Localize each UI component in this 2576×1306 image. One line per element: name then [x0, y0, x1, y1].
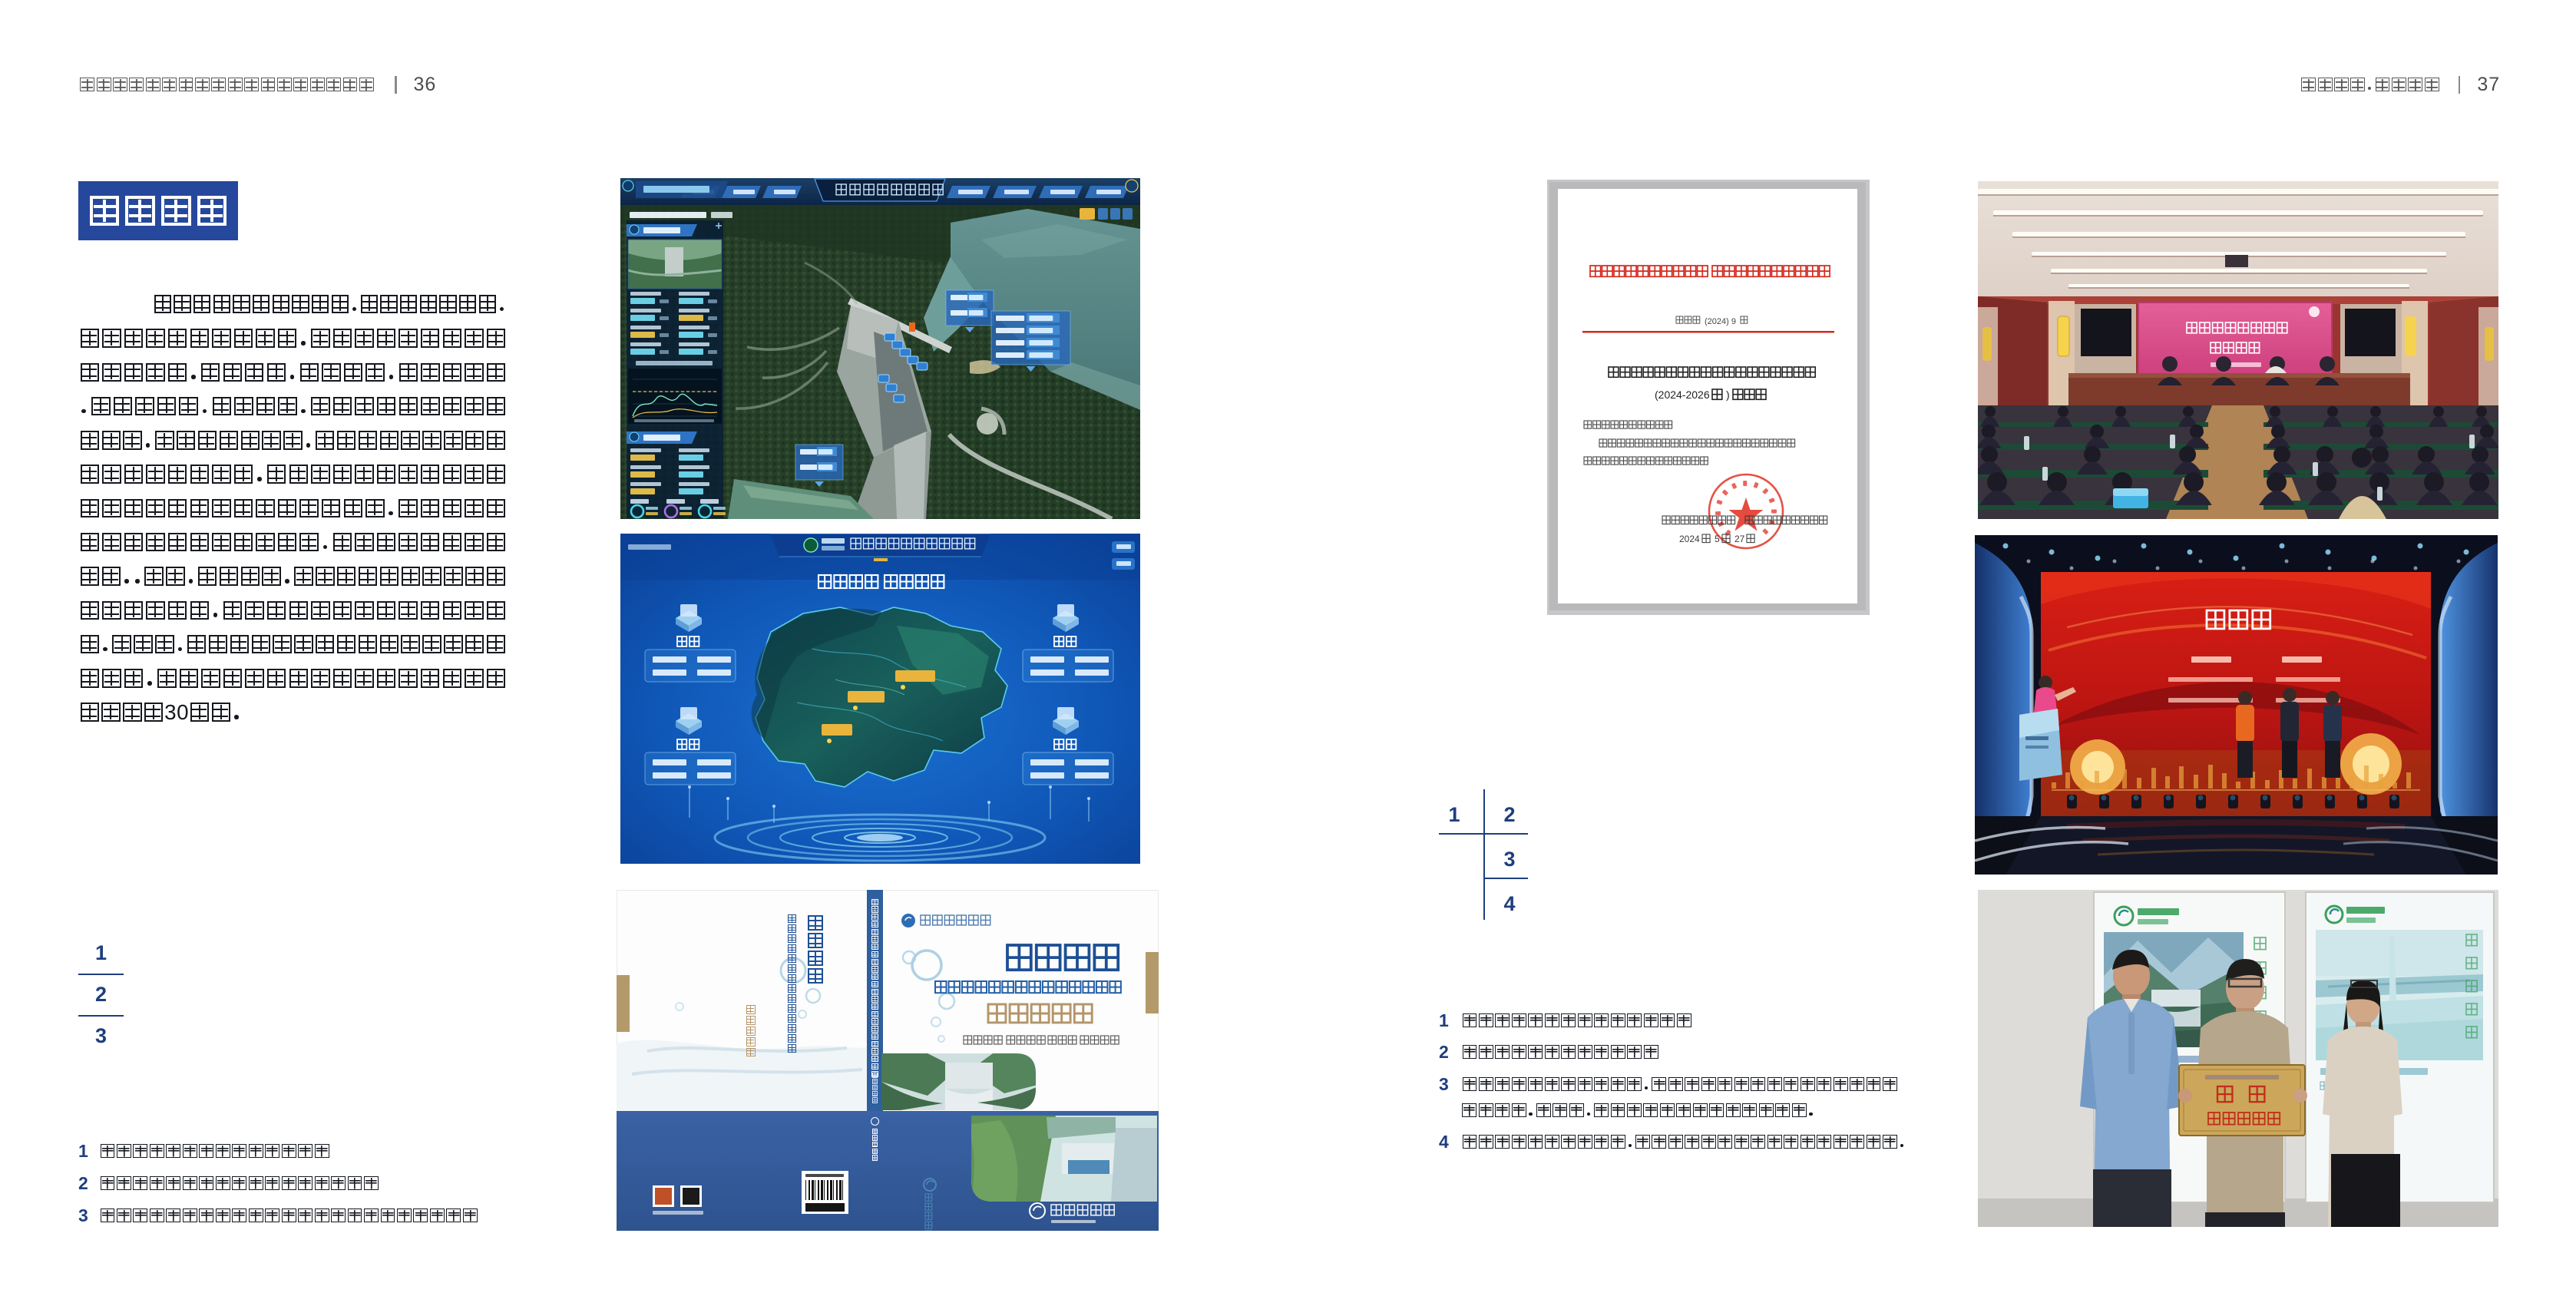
svg-text:2024: 2024 — [1679, 534, 1700, 544]
svg-text:5: 5 — [1715, 534, 1720, 544]
svg-text:27: 27 — [1734, 534, 1745, 544]
svg-text:): ) — [1726, 388, 1730, 401]
svg-text:(2024-2026: (2024-2026 — [1655, 388, 1710, 401]
svg-text:(2024) 9: (2024) 9 — [1705, 317, 1736, 326]
